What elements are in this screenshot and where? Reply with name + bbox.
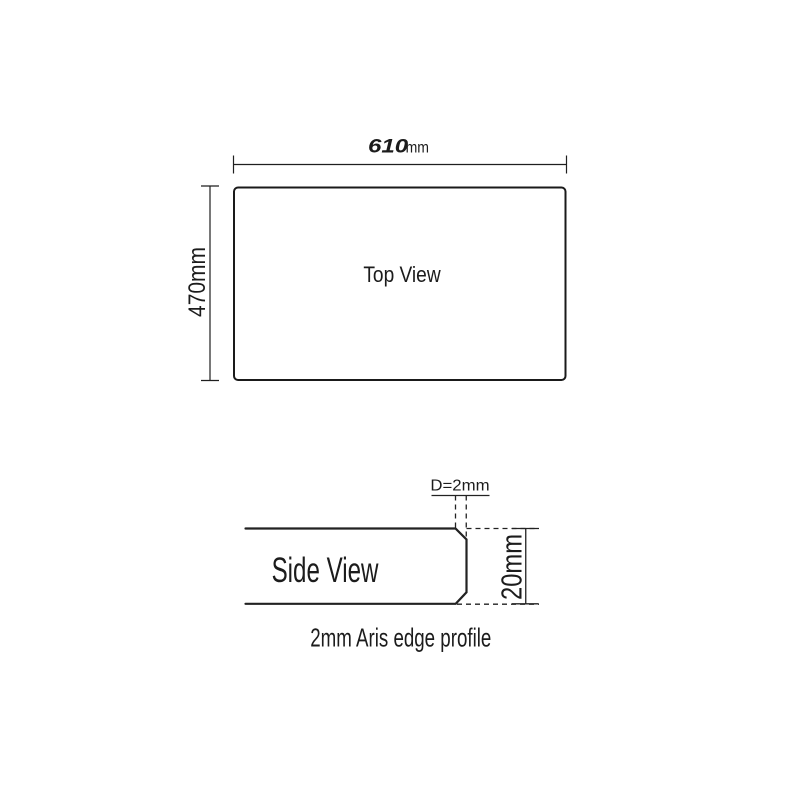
svg-text:Side View: Side View <box>272 552 379 591</box>
svg-text:D=2mm: D=2mm <box>430 477 489 494</box>
svg-text:610: 610 <box>368 135 408 157</box>
svg-text:470mm: 470mm <box>182 247 210 317</box>
svg-text:2mm Aris edge profile: 2mm Aris edge profile <box>310 622 491 652</box>
svg-text:mm: mm <box>406 140 429 157</box>
svg-text:20mm: 20mm <box>496 534 528 600</box>
svg-text:Top View: Top View <box>363 263 440 288</box>
